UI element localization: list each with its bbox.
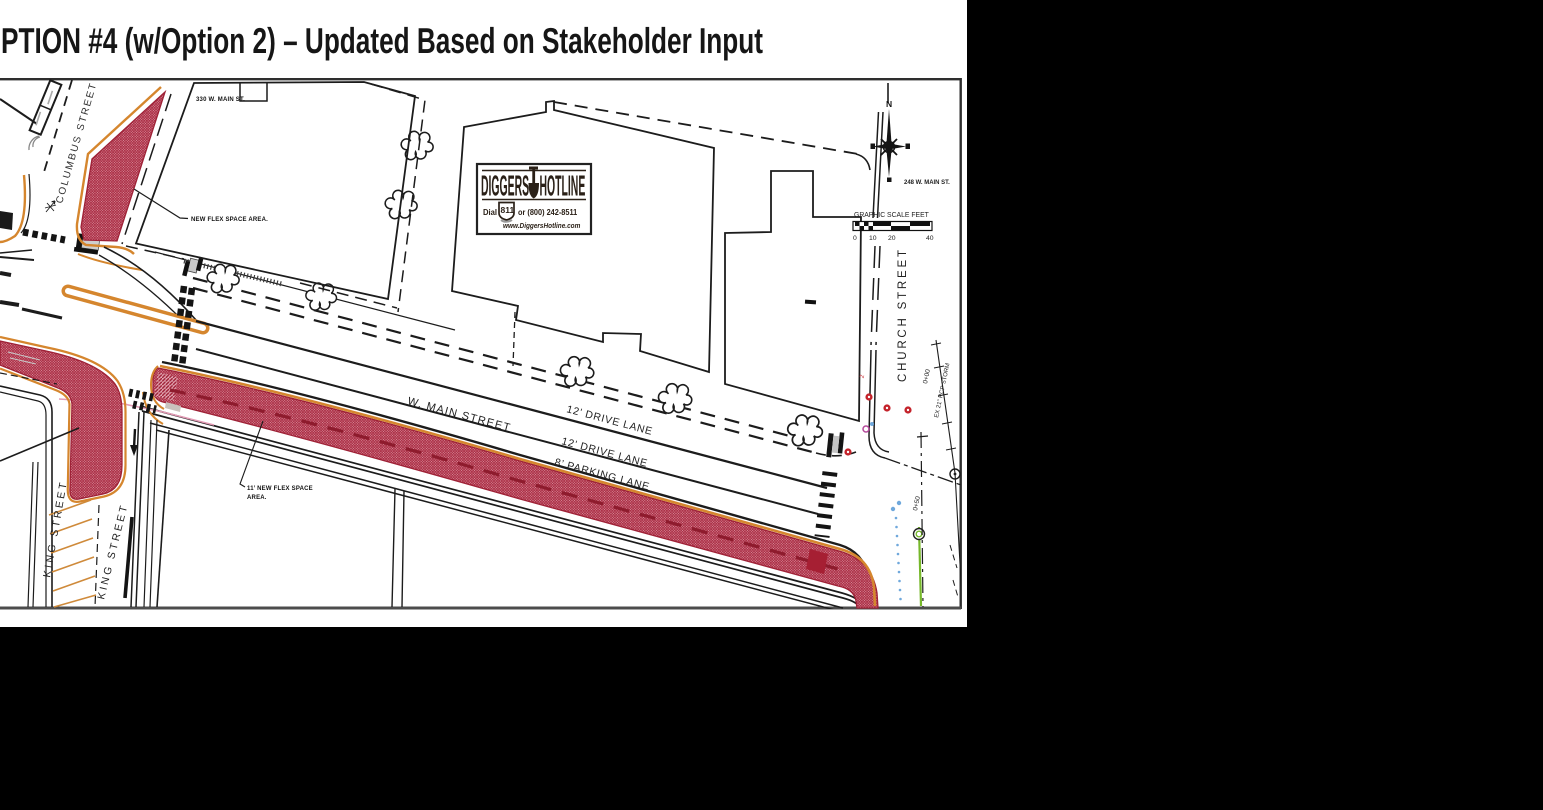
svg-text:Dial: Dial — [483, 208, 497, 217]
svg-text:811: 811 — [501, 205, 515, 215]
svg-text:20: 20 — [888, 235, 896, 242]
svg-text:248 W. MAIN ST.: 248 W. MAIN ST. — [904, 179, 950, 186]
svg-text:PTION #4 (w/Option 2) – Update: PTION #4 (w/Option 2) – Updated Based on… — [1, 20, 763, 61]
svg-text:330 W. MAIN ST.: 330 W. MAIN ST. — [196, 97, 245, 103]
svg-text:N: N — [886, 99, 892, 109]
svg-text:DIGGERS: DIGGERS — [481, 169, 529, 202]
svg-text:CHURCH STREET: CHURCH STREET — [897, 247, 909, 382]
svg-text:HOTLINE: HOTLINE — [540, 169, 586, 202]
svg-text:www.DiggersHotline.com: www.DiggersHotline.com — [503, 223, 580, 230]
svg-text:GRAPHIC SCALE FEET: GRAPHIC SCALE FEET — [854, 212, 930, 219]
svg-text:10: 10 — [869, 235, 877, 242]
svg-text:0: 0 — [853, 235, 857, 242]
svg-text:11’ NEW FLEX SPACE: 11’ NEW FLEX SPACE — [247, 486, 313, 492]
svg-text:or (800) 242-8511: or (800) 242-8511 — [518, 208, 578, 217]
svg-text:NEW FLEX SPACE AREA.: NEW FLEX SPACE AREA. — [191, 217, 268, 223]
svg-text:40: 40 — [926, 235, 934, 242]
svg-text:AREA.: AREA. — [247, 495, 267, 501]
